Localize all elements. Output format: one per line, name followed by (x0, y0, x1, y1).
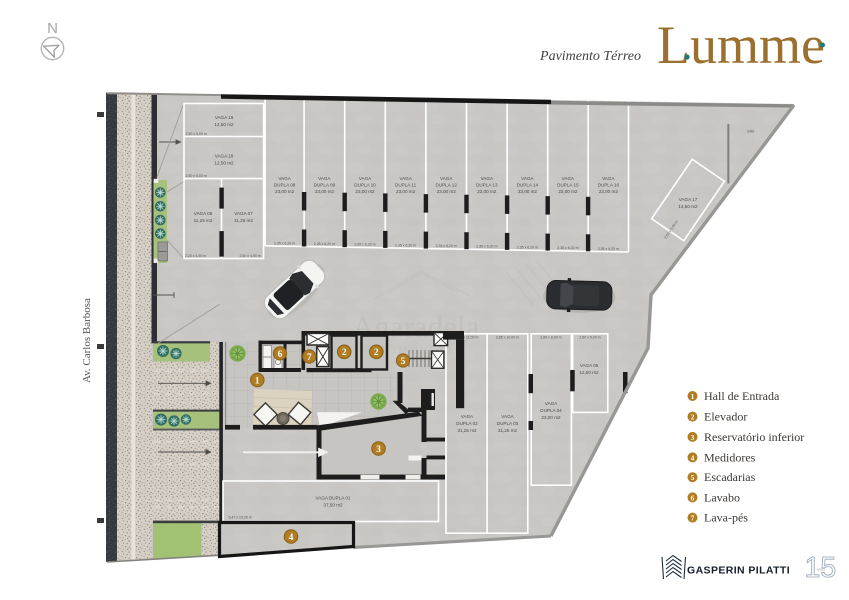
svg-text:1: 1 (255, 376, 260, 386)
svg-text:VAGA 17: VAGA 17 (679, 197, 698, 202)
svg-text:23,00 m2: 23,00 m2 (315, 189, 335, 194)
svg-text:23,00 m2: 23,00 m2 (275, 189, 295, 194)
svg-text:2,35 x 6,20 m: 2,35 x 6,20 m (274, 241, 295, 245)
svg-text:VAGA 07: VAGA 07 (234, 211, 253, 216)
svg-text:Lava-pés: Lava-pés (704, 511, 748, 525)
svg-text:Lavabo: Lavabo (704, 490, 740, 504)
svg-text:DUPLA 03: DUPLA 03 (497, 421, 519, 426)
svg-text:DUPLA 10: DUPLA 10 (354, 183, 376, 188)
svg-text:anos: anos (817, 567, 826, 572)
svg-text:2,35 x 6,20 m: 2,35 x 6,20 m (517, 245, 538, 249)
svg-text:DUPLA 13: DUPLA 13 (476, 183, 498, 188)
svg-text:3: 3 (376, 445, 381, 455)
svg-text:VAGA: VAGA (562, 176, 575, 181)
svg-text:23,00 m2: 23,00 m2 (599, 189, 619, 194)
svg-text:2,85 x 10,00 m: 2,85 x 10,00 m (496, 336, 519, 340)
svg-text:4: 4 (691, 453, 695, 462)
svg-text:2,35 x 6,20 m: 2,35 x 6,20 m (314, 242, 335, 246)
svg-text:11,25 m2: 11,25 m2 (234, 218, 253, 223)
svg-text:23,00 m2: 23,00 m2 (396, 189, 416, 194)
svg-text:VAGA: VAGA (481, 176, 494, 181)
svg-text:VAGA: VAGA (278, 176, 291, 181)
svg-text:1: 1 (691, 392, 695, 401)
svg-text:2: 2 (342, 348, 347, 358)
svg-text:DUPLA 09: DUPLA 09 (314, 183, 336, 188)
svg-text:Av. Carlos Barbosa: Av. Carlos Barbosa (81, 298, 93, 383)
svg-text:23,00 m2: 23,00 m2 (541, 415, 561, 420)
svg-text:GÁS: GÁS (747, 130, 755, 134)
svg-text:12,50 m2: 12,50 m2 (214, 122, 234, 127)
svg-text:12,50 m2: 12,50 m2 (214, 161, 234, 166)
svg-text:2,85 x 8,00 m: 2,85 x 8,00 m (540, 336, 561, 340)
svg-text:DUPLA 11: DUPLA 11 (395, 183, 417, 188)
svg-text:Escadarias: Escadarias (704, 470, 756, 484)
svg-text:VAGA DUPLA 01: VAGA DUPLA 01 (316, 496, 351, 501)
svg-text:2,35 x 6,20 m: 2,35 x 6,20 m (598, 247, 619, 251)
svg-text:4: 4 (289, 533, 294, 543)
svg-text:DUPLA 14: DUPLA 14 (517, 183, 539, 188)
svg-text:Lumme: Lumme (657, 15, 825, 75)
svg-text:DUPLA 04: DUPLA 04 (540, 408, 562, 413)
svg-text:VAGA: VAGA (399, 176, 412, 181)
svg-text:DUPLA 16: DUPLA 16 (598, 183, 620, 188)
svg-text:DUPLA 12: DUPLA 12 (435, 183, 457, 188)
svg-text:2,50 x 5,00 m: 2,50 x 5,00 m (186, 132, 207, 136)
svg-text:2,35 x 6,20 m: 2,35 x 6,20 m (395, 243, 416, 247)
svg-text:VAGA: VAGA (521, 176, 534, 181)
svg-text:2: 2 (374, 348, 379, 358)
svg-text:VAGA 18: VAGA 18 (215, 154, 234, 159)
svg-text:2: 2 (691, 413, 695, 422)
svg-text:23,00 m2: 23,00 m2 (477, 189, 497, 194)
svg-text:DUPLA 08: DUPLA 08 (274, 183, 296, 188)
svg-text:N: N (47, 20, 58, 37)
svg-text:2,20 x 4,90 m: 2,20 x 4,90 m (185, 254, 206, 258)
svg-text:DUPLA 15: DUPLA 15 (557, 183, 579, 188)
svg-text:12,50 m2: 12,50 m2 (579, 370, 599, 375)
svg-text:11,25 m2: 11,25 m2 (194, 218, 213, 223)
svg-text:23,00 m2: 23,00 m2 (558, 189, 578, 194)
svg-text:VAGA: VAGA (545, 401, 558, 406)
svg-text:GASPERIN PILATTI: GASPERIN PILATTI (687, 565, 790, 577)
svg-text:VAGA: VAGA (359, 176, 372, 181)
svg-text:2,35 x 6,20 m: 2,35 x 6,20 m (354, 243, 375, 247)
svg-text:23,00 m2: 23,00 m2 (437, 189, 457, 194)
svg-text:VAGA 19: VAGA 19 (215, 115, 234, 120)
svg-text:VAGA: VAGA (501, 414, 514, 419)
svg-text:31,25 m2: 31,25 m2 (498, 428, 518, 433)
svg-text:12,50 m2: 12,50 m2 (678, 204, 698, 209)
svg-text:VAGA: VAGA (461, 414, 474, 419)
svg-text:VAGA: VAGA (318, 176, 331, 181)
svg-text:DUPLA 02: DUPLA 02 (456, 421, 478, 426)
svg-text:23,00 m2: 23,00 m2 (518, 189, 538, 194)
svg-text:Reservatório inferior: Reservatório inferior (704, 430, 804, 444)
svg-text:2,35 x 6,20 m: 2,35 x 6,20 m (476, 245, 497, 249)
svg-text:VAGA: VAGA (602, 176, 615, 181)
svg-text:7: 7 (307, 353, 312, 363)
svg-text:2,35 x 6,20 m: 2,35 x 6,20 m (436, 244, 457, 248)
svg-text:6: 6 (691, 493, 695, 502)
svg-text:VAGA 05: VAGA 05 (580, 363, 599, 368)
svg-text:5: 5 (401, 357, 406, 367)
svg-text:Pavimento Térreo: Pavimento Térreo (539, 49, 641, 64)
svg-text:6: 6 (278, 350, 283, 360)
svg-text:2,50 x 5,00 m: 2,50 x 5,00 m (186, 174, 207, 178)
svg-text:Hall de Entrada: Hall de Entrada (704, 389, 780, 403)
svg-text:7: 7 (691, 514, 695, 523)
svg-text:2,50 x 5,00 m: 2,50 x 5,00 m (579, 336, 600, 340)
svg-text:5: 5 (691, 473, 695, 482)
svg-text:5,47 x 19,20 m: 5,47 x 19,20 m (229, 516, 252, 520)
svg-text:2,35 x 6,20 m: 2,35 x 6,20 m (557, 246, 578, 250)
svg-text:VAGA: VAGA (440, 176, 453, 181)
svg-text:Elevador: Elevador (704, 410, 747, 424)
svg-text:37,50 m2: 37,50 m2 (323, 503, 343, 508)
svg-text:31,25 m2: 31,25 m2 (457, 428, 477, 433)
svg-text:3: 3 (691, 433, 695, 442)
svg-text:23,00 m2: 23,00 m2 (355, 189, 375, 194)
svg-text:VAGA 06: VAGA 06 (194, 211, 213, 216)
svg-text:2,50 x 4,90 m: 2,50 x 4,90 m (240, 254, 261, 258)
svg-text:Medidores: Medidores (704, 450, 756, 464)
